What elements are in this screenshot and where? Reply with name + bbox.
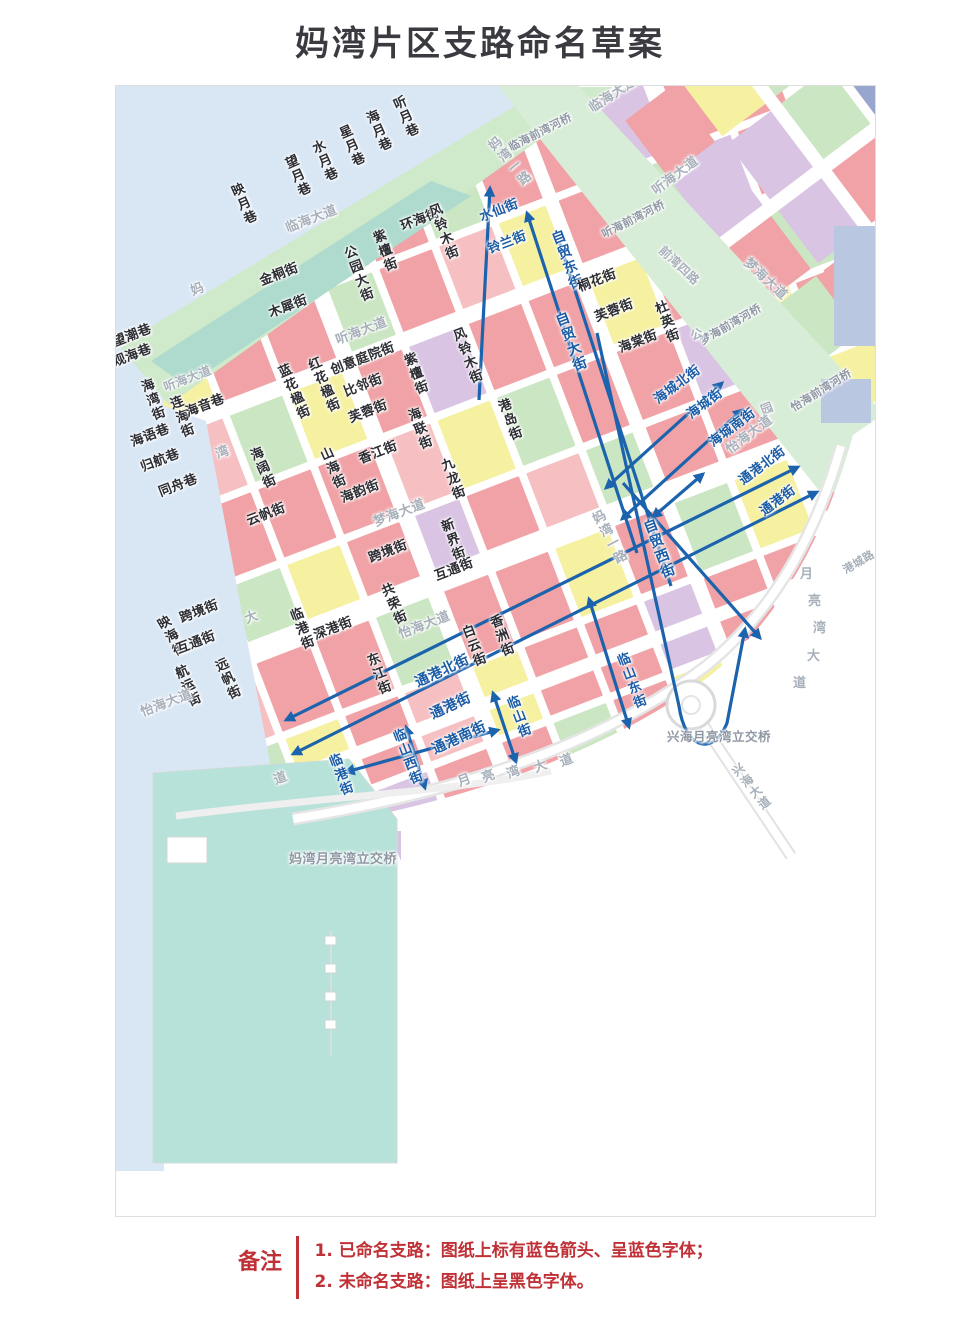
avenue-label: 大: [243, 609, 260, 626]
street-label: 深港街: [312, 615, 355, 642]
named-street-label: 自贸大街: [552, 310, 589, 375]
avenue-label: 湾: [505, 764, 522, 781]
avenue-label: 临海大道: [587, 85, 640, 115]
map-canvas: 听月巷海月巷星月巷水月巷望月巷映月巷环海街临海大道临海大道妈湾一路妈湾一路临海前…: [115, 85, 876, 1217]
street-label: 香江街: [357, 439, 400, 466]
planning-map-page: 妈湾片区支路命名草案: [0, 0, 960, 1333]
named-street-label: 海城街: [685, 387, 725, 422]
named-street-label: 铃兰街: [486, 229, 529, 256]
landmark-label: 兴海月亮湾立交桥: [667, 730, 771, 743]
landmark-label: 临海前湾河桥: [507, 112, 574, 154]
avenue-label: 前湾四路: [656, 244, 701, 287]
street-label: 海湾街: [137, 377, 166, 424]
avenue-label: 大: [807, 650, 821, 664]
street-label: 听月巷: [389, 95, 420, 142]
street-label: 桐花街: [576, 267, 619, 294]
page-title: 妈湾片区支路命名草案: [0, 16, 960, 65]
street-label: 芙蓉街: [593, 297, 636, 324]
named-street-label: 临山东街: [613, 651, 647, 712]
avenue-label: 道: [558, 752, 575, 769]
street-label: 互通街: [433, 556, 476, 583]
street-label: 东江街: [363, 651, 392, 698]
named-street-label: 临山街: [503, 694, 532, 741]
named-street-label: 通港街: [428, 691, 474, 723]
street-label: 望月巷: [281, 154, 312, 201]
legend-note: 备注 1. 已命名支路：图纸上标有蓝色箭头、呈蓝色字体； 2. 未命名支路：图纸…: [238, 1236, 713, 1299]
street-label: 海音巷: [184, 392, 227, 419]
avenue-label: 怡海大道: [139, 688, 194, 720]
avenue-label: 梦海大道: [741, 256, 790, 303]
note-lines: 1. 已命名支路：图纸上标有蓝色箭头、呈蓝色字体； 2. 未命名支路：图纸上呈黑…: [315, 1236, 713, 1299]
street-label: 跨境街: [178, 598, 221, 625]
avenue-label: 道: [793, 677, 807, 691]
street-label: 比邻街: [342, 372, 385, 399]
street-label: 九龙街: [437, 456, 466, 503]
avenue-label: 听海大道: [650, 154, 701, 197]
note-line-2: 2. 未命名支路：图纸上呈黑色字体。: [315, 1267, 713, 1298]
street-label: 跨境街: [367, 538, 410, 565]
note-title: 备注: [238, 1236, 282, 1299]
street-label: 共荣街: [377, 582, 408, 629]
street-label: 映月巷: [227, 182, 258, 229]
street-label: 公园大街: [340, 244, 374, 305]
street-label: 香洲街: [486, 613, 515, 660]
street-label: 临港街: [286, 606, 315, 653]
avenue-label: 湾: [214, 444, 231, 461]
street-label-layer: 听月巷海月巷星月巷水月巷望月巷映月巷环海街临海大道临海大道妈湾一路妈湾一路临海前…: [115, 85, 876, 1217]
named-street-label: 通港街: [758, 484, 798, 519]
named-street-label: 水仙街: [478, 197, 521, 224]
avenue-label: 妈湾一路: [588, 509, 628, 568]
street-label: 金桐街: [258, 261, 301, 288]
landmark-label: 梦海前湾河桥: [698, 303, 763, 347]
street-label: 海月巷: [362, 109, 393, 156]
street-label: 远帆街: [211, 657, 242, 704]
street-label: 紫檀街: [369, 228, 398, 275]
street-label: 水月巷: [308, 139, 339, 186]
avenue-label: 临海大道: [284, 204, 339, 236]
note-line-1: 1. 已命名支路：图纸上标有蓝色箭头、呈蓝色字体；: [315, 1236, 713, 1267]
street-label: 芙蓉街: [347, 398, 390, 425]
street-label: 山海街: [316, 446, 347, 493]
avenue-label: 湾: [813, 622, 827, 636]
named-street-label: 临港街: [325, 752, 354, 799]
avenue-label: 港城路: [841, 549, 876, 576]
street-label: 云帆街: [245, 501, 288, 528]
landmark-label: 听海前湾河桥: [600, 199, 667, 241]
named-street-label: 通港北街: [737, 444, 788, 487]
street-label: 紫檀街: [400, 351, 429, 398]
avenue-label: 兴海大道: [729, 761, 773, 813]
named-street-label: 临山西街: [389, 727, 423, 788]
street-label: 港岛街: [494, 397, 523, 444]
street-label: 海阔街: [246, 446, 277, 493]
street-label: 风铃木街: [425, 202, 459, 263]
avenue-label: 梦海大道: [372, 498, 427, 530]
street-label: 海棠街: [617, 328, 660, 355]
avenue-label: 亮: [808, 595, 822, 609]
street-label: 风铃木街: [449, 326, 483, 387]
street-label: 海语巷: [129, 422, 172, 449]
note-divider: [296, 1236, 299, 1299]
street-label: 木犀街: [267, 293, 310, 320]
street-label: 新界街: [437, 517, 466, 564]
named-street-label: 通港南街: [430, 719, 489, 757]
avenue-label: 月: [800, 568, 814, 582]
landmark-label: 怡海前湾河桥: [789, 367, 854, 413]
landmark-label: 妈湾月亮湾立交桥: [289, 853, 397, 867]
named-street-label: 自贸西街: [640, 517, 677, 582]
avenue-label: 亮: [480, 768, 497, 785]
street-label: 星月巷: [335, 124, 366, 171]
street-label: 海联街: [404, 406, 433, 453]
street-label: 归航巷: [139, 447, 182, 474]
avenue-label: 道: [272, 770, 289, 787]
street-label: 蓝花楹街: [274, 363, 311, 423]
street-label: 互通街: [175, 629, 218, 656]
avenue-label: 妈: [189, 281, 206, 298]
street-label: 同舟巷: [157, 472, 200, 499]
named-street-label: 通港北街: [413, 652, 472, 690]
avenue-label: 大: [532, 758, 549, 775]
avenue-label: 月: [456, 772, 473, 789]
avenue-label: 听海大道: [162, 364, 213, 394]
map-panel: 听月巷海月巷星月巷水月巷望月巷映月巷环海街临海大道临海大道妈湾一路妈湾一路临海前…: [115, 85, 876, 1217]
